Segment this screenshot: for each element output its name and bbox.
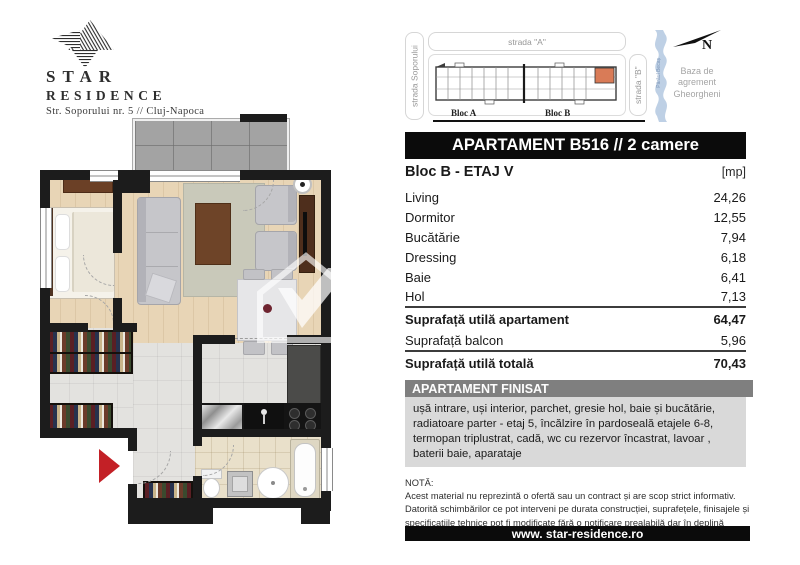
balcony-parapet-wall (240, 114, 287, 122)
flyer-page: STAR RESIDENCE Str. Soporului nr. 5 // C… (0, 0, 800, 565)
room-value: 7,94 (721, 230, 746, 245)
site-plan-baseline (433, 120, 645, 122)
balcony-glass-door (150, 170, 240, 182)
bathroom-window (321, 448, 333, 491)
room-value: 12,55 (713, 210, 746, 225)
wall (113, 323, 137, 332)
room-label: Living (405, 190, 439, 205)
room-label: Dormitor (405, 210, 455, 225)
unit-header: [mp] (722, 165, 746, 179)
finisat-header: APARTAMENT FINISAT (405, 380, 753, 397)
brand-name-star: STAR (46, 67, 118, 87)
room-value: 6,18 (721, 250, 746, 265)
sofa-seam (146, 232, 178, 233)
watermark-house-icon (240, 248, 372, 348)
bloc-a-label: Bloc A (451, 108, 476, 118)
kitchen-tall-cabinet (287, 345, 321, 405)
bedroom-side-window (40, 208, 52, 288)
site-plan: strada Soporului strada "A" (405, 24, 725, 122)
website-url: www. star-residence.ro (512, 527, 644, 541)
summary-row: Suprafață utilă apartament 64,47 (405, 308, 746, 330)
sofa-backrest (138, 198, 146, 302)
compass-north-icon (673, 30, 723, 54)
summary-label: Suprafață utilă apartament (405, 312, 569, 327)
table-row: Hol 7,13 (405, 287, 746, 306)
sofa-seam (146, 266, 178, 267)
wall (193, 429, 330, 437)
armchair-backrest (288, 186, 296, 222)
street-a-label: strada "A" (428, 32, 626, 51)
lamp-center (300, 182, 305, 187)
wall (40, 170, 50, 208)
apartment-title-bar: APARTAMENT B516 // 2 camere (405, 132, 746, 159)
finisat-title: APARTAMENT FINISAT (412, 382, 549, 396)
wall (40, 288, 50, 438)
burner (305, 408, 316, 419)
washing-machine-door (232, 476, 248, 492)
note-title: NOTĂ: (405, 477, 750, 490)
compass-n-label: N (702, 38, 712, 54)
room-value: 24,26 (713, 190, 746, 205)
wall (240, 170, 330, 180)
room-label: Baie (405, 270, 431, 285)
kitchen-cooktop (284, 403, 321, 431)
table-row: Living 24,26 (405, 187, 746, 207)
wall (321, 491, 331, 511)
areas-table: Living 24,26 Dormitor 12,55 Bucătărie 7,… (405, 187, 746, 374)
bathtub-drain (303, 487, 307, 491)
wardrobe-shelves (47, 330, 133, 374)
table-row: Dormitor 12,55 (405, 207, 746, 227)
wall (40, 428, 137, 438)
sofa-throw-pillow (145, 273, 177, 304)
room-value: 6,41 (721, 270, 746, 285)
street-soporului-label: strada Soporului (405, 32, 424, 120)
building-footprint (435, 62, 617, 106)
room-label: Hol (405, 289, 425, 304)
bloc-b-label: Bloc B (545, 108, 570, 118)
website-bar: www. star-residence.ro (405, 526, 750, 541)
wall (40, 323, 88, 332)
bathtub (290, 439, 320, 501)
table-row: Bucătărie 7,94 (405, 227, 746, 247)
coffee-table (195, 203, 231, 265)
star-residence-logo-icon (46, 20, 120, 70)
toilet-bowl (203, 478, 220, 498)
sofa (137, 197, 181, 305)
bed (47, 207, 115, 299)
wall (193, 335, 202, 429)
room-value: 7,13 (721, 289, 746, 304)
wall (128, 438, 137, 451)
area-gheorgheni-label: Baza de agrement Gheorgheni (669, 66, 725, 100)
summary-value: 70,43 (713, 356, 746, 371)
burner (289, 408, 300, 419)
pillow (55, 256, 70, 292)
summary-value: 5,96 (721, 333, 746, 348)
room-label: Bucătărie (405, 230, 460, 245)
note-line: Acest material nu reprezintă o ofertă sa… (405, 490, 750, 503)
river-label: Pârâul Becaș (656, 58, 662, 88)
kitchen-sink (244, 403, 284, 431)
block-floor-label: Bloc B - ETAJ V (405, 164, 514, 180)
entrance-arrow-icon (99, 449, 120, 483)
table-row: Baie 6,41 (405, 267, 746, 287)
sink-drain (271, 481, 275, 485)
block-floor-row: Bloc B - ETAJ V [mp] (405, 163, 746, 181)
wall (193, 476, 202, 501)
summary-row: Suprafață balcon 5,96 (405, 330, 746, 350)
balcony-area (133, 119, 289, 174)
street-b-label: strada "B" (629, 54, 647, 116)
brand-name-residence: RESIDENCE (46, 88, 166, 104)
highlighted-unit-b516 (595, 68, 614, 83)
washing-machine (227, 471, 253, 497)
wall (113, 180, 122, 253)
wall (193, 437, 202, 446)
bathroom-sink (257, 467, 289, 499)
room-label: Dressing (405, 250, 456, 265)
finisat-description: ușă intrare, uși interior, parchet, gres… (405, 397, 746, 467)
faucet-stem (263, 415, 265, 424)
bathtub-inner (294, 443, 316, 497)
summary-label: Suprafață utilă totală (405, 356, 534, 371)
table-row: Dressing 6,18 (405, 247, 746, 267)
summary-value: 64,47 (713, 312, 746, 327)
apartment-title: APARTAMENT B516 // 2 camere (452, 136, 699, 155)
summary-row: Suprafață utilă totală 70,43 (405, 352, 746, 374)
wall (128, 498, 213, 524)
wall (213, 498, 307, 508)
wall-pier (118, 170, 150, 193)
summary-label: Suprafață balcon (405, 333, 503, 348)
floor-plan (35, 113, 395, 549)
pillow (55, 214, 70, 250)
